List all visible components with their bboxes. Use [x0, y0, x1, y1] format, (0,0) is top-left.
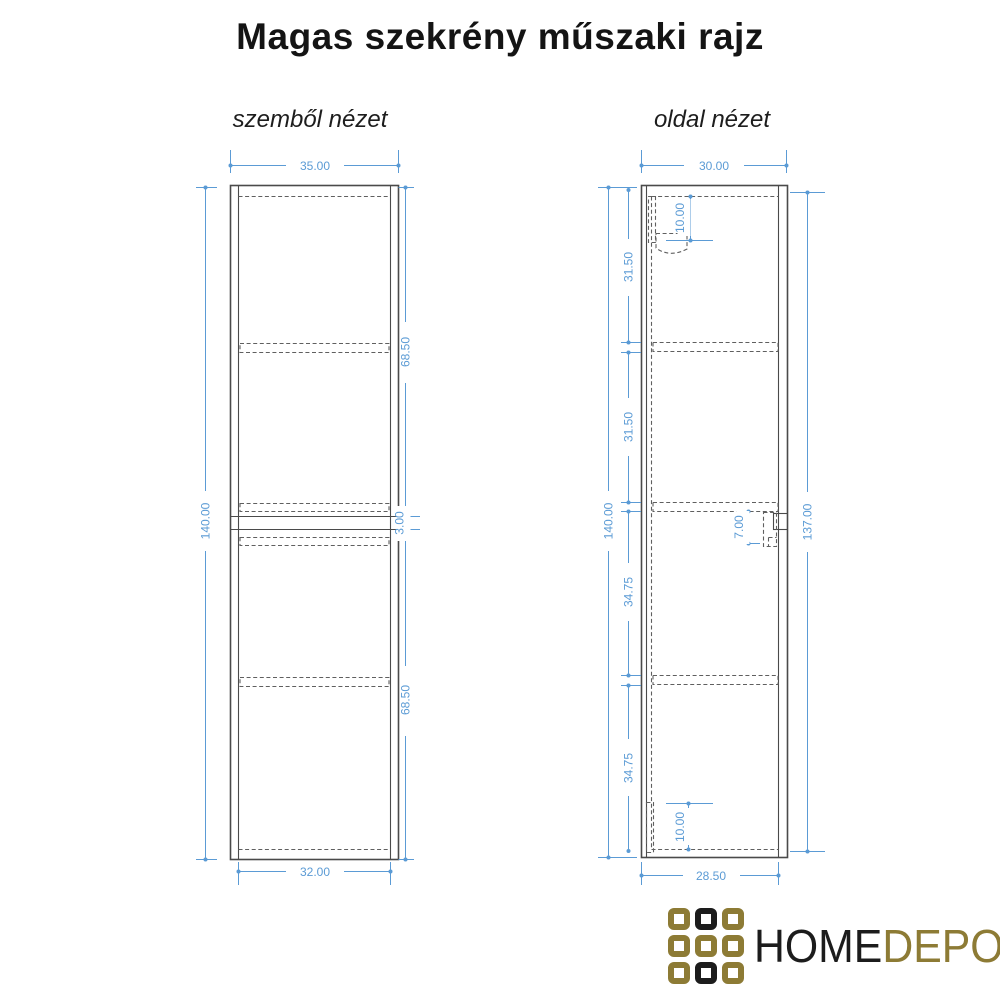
- dim-front-total-height: 140.00: [199, 502, 213, 539]
- dim-side-segment-1: 31.50: [622, 252, 636, 282]
- side-view-dimensions: 30.00 28.50: [598, 150, 825, 885]
- dim-side-depth-top: 30.00: [699, 159, 729, 173]
- logo-text-depo: DEPO: [882, 920, 1000, 972]
- dim-side-front-height: 137.00: [801, 503, 815, 540]
- dim-front-width-top: 35.00: [300, 159, 330, 173]
- logo-text: HOMEDEPO: [754, 919, 1000, 973]
- logo-square-gold: [668, 908, 690, 930]
- logo: HOMEDEPO: [668, 908, 1000, 984]
- logo-text-home: HOME: [754, 920, 882, 972]
- logo-grid: [668, 908, 744, 984]
- dim-side-segment-4: 34.75: [622, 753, 636, 783]
- dim-side-total-height: 140.00: [602, 502, 616, 539]
- logo-square-gold: [722, 962, 744, 984]
- logo-square-black: [695, 962, 717, 984]
- front-view-dimensions: 35.00 32.00 140.00: [196, 150, 420, 885]
- dim-side-segment-2: 31.50: [622, 412, 636, 442]
- logo-square-gold: [668, 935, 690, 957]
- dim-front-upper-section: 68.50: [399, 337, 413, 367]
- logo-square-gold: [722, 908, 744, 930]
- dim-front-middle-gap: 3.00: [393, 511, 407, 535]
- dim-side-bottom-bracket: 10.00: [673, 812, 687, 842]
- side-view-drawing: [642, 186, 788, 858]
- dim-side-segment-3: 34.75: [622, 577, 636, 607]
- logo-square-gold: [695, 935, 717, 957]
- logo-square-gold: [668, 962, 690, 984]
- dim-side-connector: 7.00: [732, 515, 746, 539]
- dim-side-top-bracket: 10.00: [673, 203, 687, 233]
- dim-front-width-bottom: 32.00: [300, 865, 330, 879]
- dim-side-depth-bottom: 28.50: [696, 869, 726, 883]
- dim-front-lower-section: 68.50: [399, 685, 413, 715]
- technical-drawing-page: Magas szekrény műszaki rajz szemből néze…: [0, 0, 1000, 1000]
- technical-drawing-svg: 35.00 32.00 140.00: [0, 0, 1000, 1000]
- logo-square-gold: [722, 935, 744, 957]
- logo-square-black: [695, 908, 717, 930]
- front-view-drawing: [231, 186, 399, 860]
